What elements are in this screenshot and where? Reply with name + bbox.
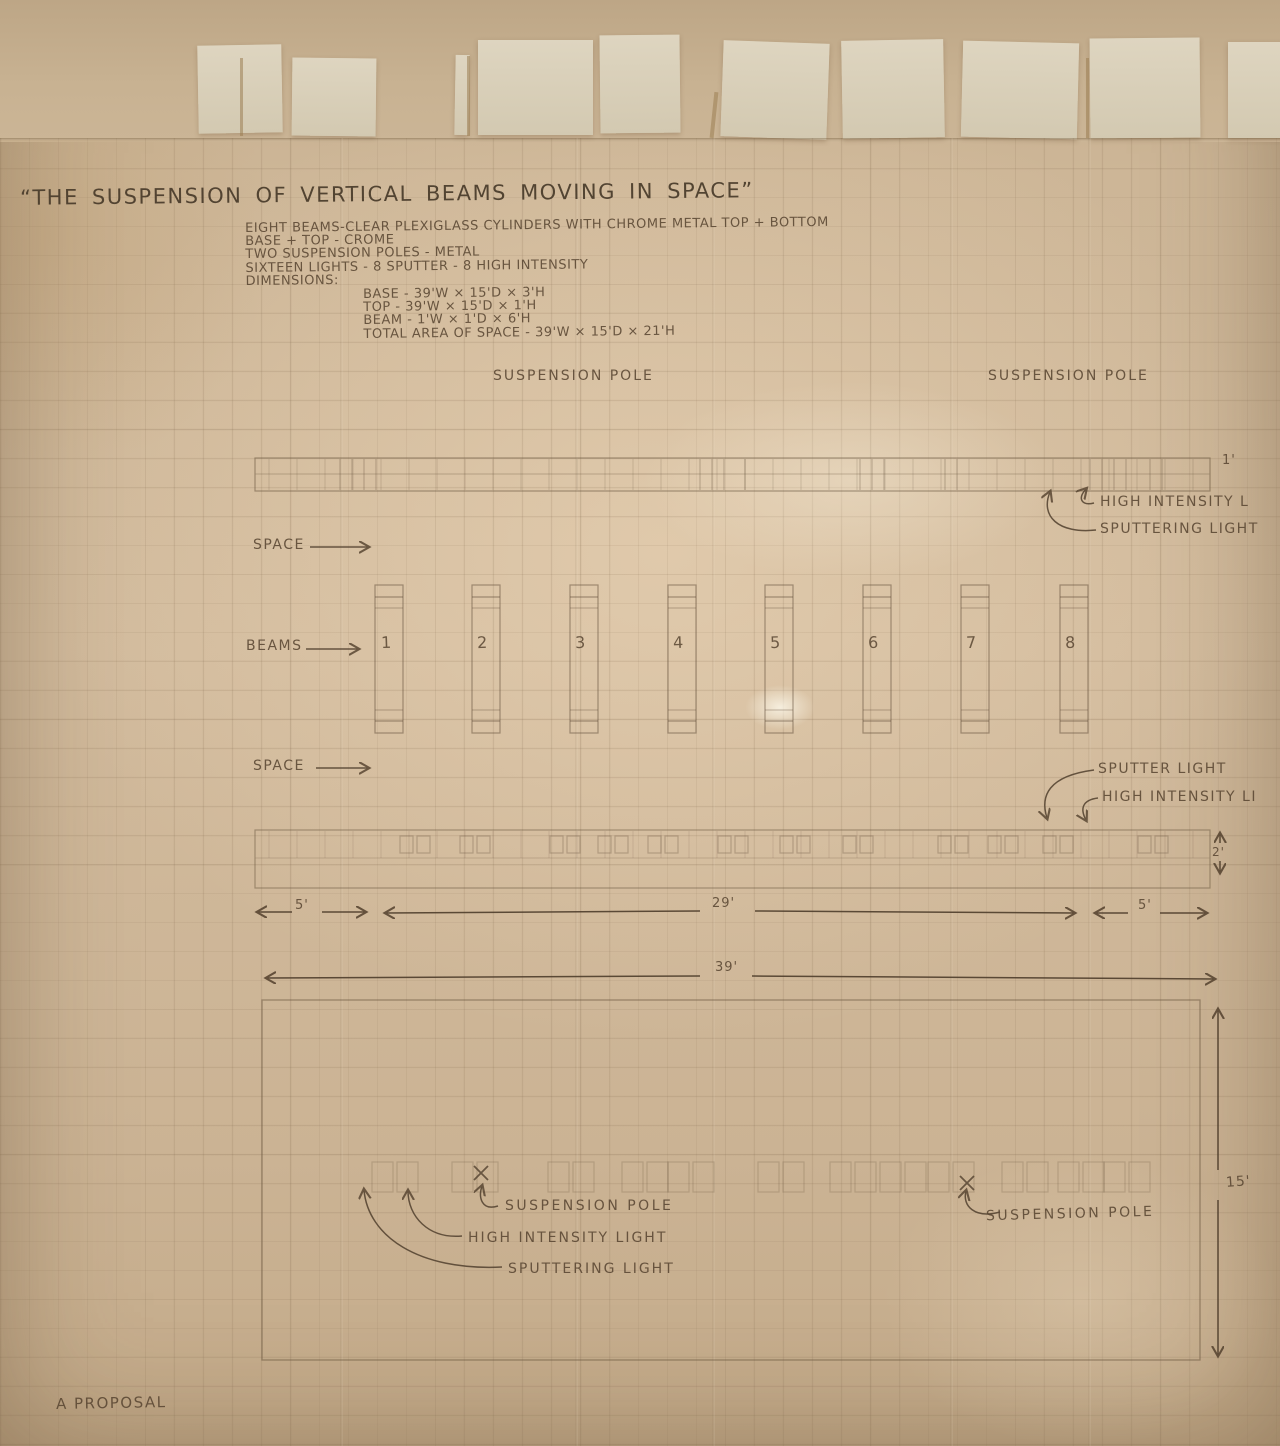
sputtering-light-label-top: SPUTTERING LIGHT xyxy=(1100,521,1259,537)
suspension-pole-label-plan-left: SUSPENSION POLE xyxy=(505,1198,673,1214)
beam-number: 5 xyxy=(770,633,781,652)
beam-number: 7 xyxy=(966,633,977,652)
plan-rectangle xyxy=(262,1000,1200,1360)
suspension-pole-label-right: SUSPENSION POLE xyxy=(988,368,1149,384)
beam-number: 2 xyxy=(477,633,488,652)
sputtering-light-label-plan: SPUTTERING LIGHT xyxy=(508,1261,675,1277)
beam-number: 8 xyxy=(1065,633,1076,652)
pole-x-marks xyxy=(474,1166,974,1190)
high-intensity-light-label-plan: HIGH INTENSITY LIGHT xyxy=(468,1230,667,1246)
leader-arrows xyxy=(364,489,1098,1267)
beam-number: 3 xyxy=(575,633,586,652)
dimension-block: BASE - 39'W × 15'D × 3'H TOP - 39'W × 15… xyxy=(363,284,675,340)
beam-number: 6 xyxy=(868,633,879,652)
space-label-lower: SPACE xyxy=(253,758,305,774)
high-intensity-light-label-top: HIGH INTENSITY L xyxy=(1100,494,1249,510)
base-thickness-dim: 2' xyxy=(1212,845,1225,859)
dim-5ft-right: 5' xyxy=(1138,898,1152,913)
proposal-caption: A PROPOSAL xyxy=(56,1393,167,1413)
dim-15ft: 15' xyxy=(1225,1173,1251,1191)
space-label-upper: SPACE xyxy=(253,537,305,553)
dimension-arrows xyxy=(258,834,1220,1355)
dim-29ft: 29' xyxy=(712,896,735,911)
beam-number: 1 xyxy=(381,633,392,652)
spec-block: EIGHT BEAMS-CLEAR PLEXIGLASS CYLINDERS W… xyxy=(245,215,829,287)
dimension-line: TOTAL AREA OF SPACE - 39'W × 15'D × 21'H xyxy=(363,323,675,339)
high-intensity-light-label-mid: HIGH INTENSITY LI xyxy=(1102,789,1257,805)
dim-5ft-left: 5' xyxy=(295,898,309,913)
proposal-drawing-photo: “THE SUSPENSION OF VERTICAL BEAMS MOVING… xyxy=(0,0,1280,1446)
beams-label: BEAMS xyxy=(246,638,303,654)
top-thickness-dim: 1' xyxy=(1222,453,1236,468)
beam-number: 4 xyxy=(673,633,684,652)
base-bar xyxy=(255,830,1210,888)
top-bar xyxy=(255,458,1210,491)
sputter-light-label-mid: SPUTTER LIGHT xyxy=(1098,761,1227,777)
suspension-pole-label-left: SUSPENSION POLE xyxy=(493,368,654,384)
dim-39ft: 39' xyxy=(715,960,738,975)
pointer-arrows xyxy=(306,547,368,768)
